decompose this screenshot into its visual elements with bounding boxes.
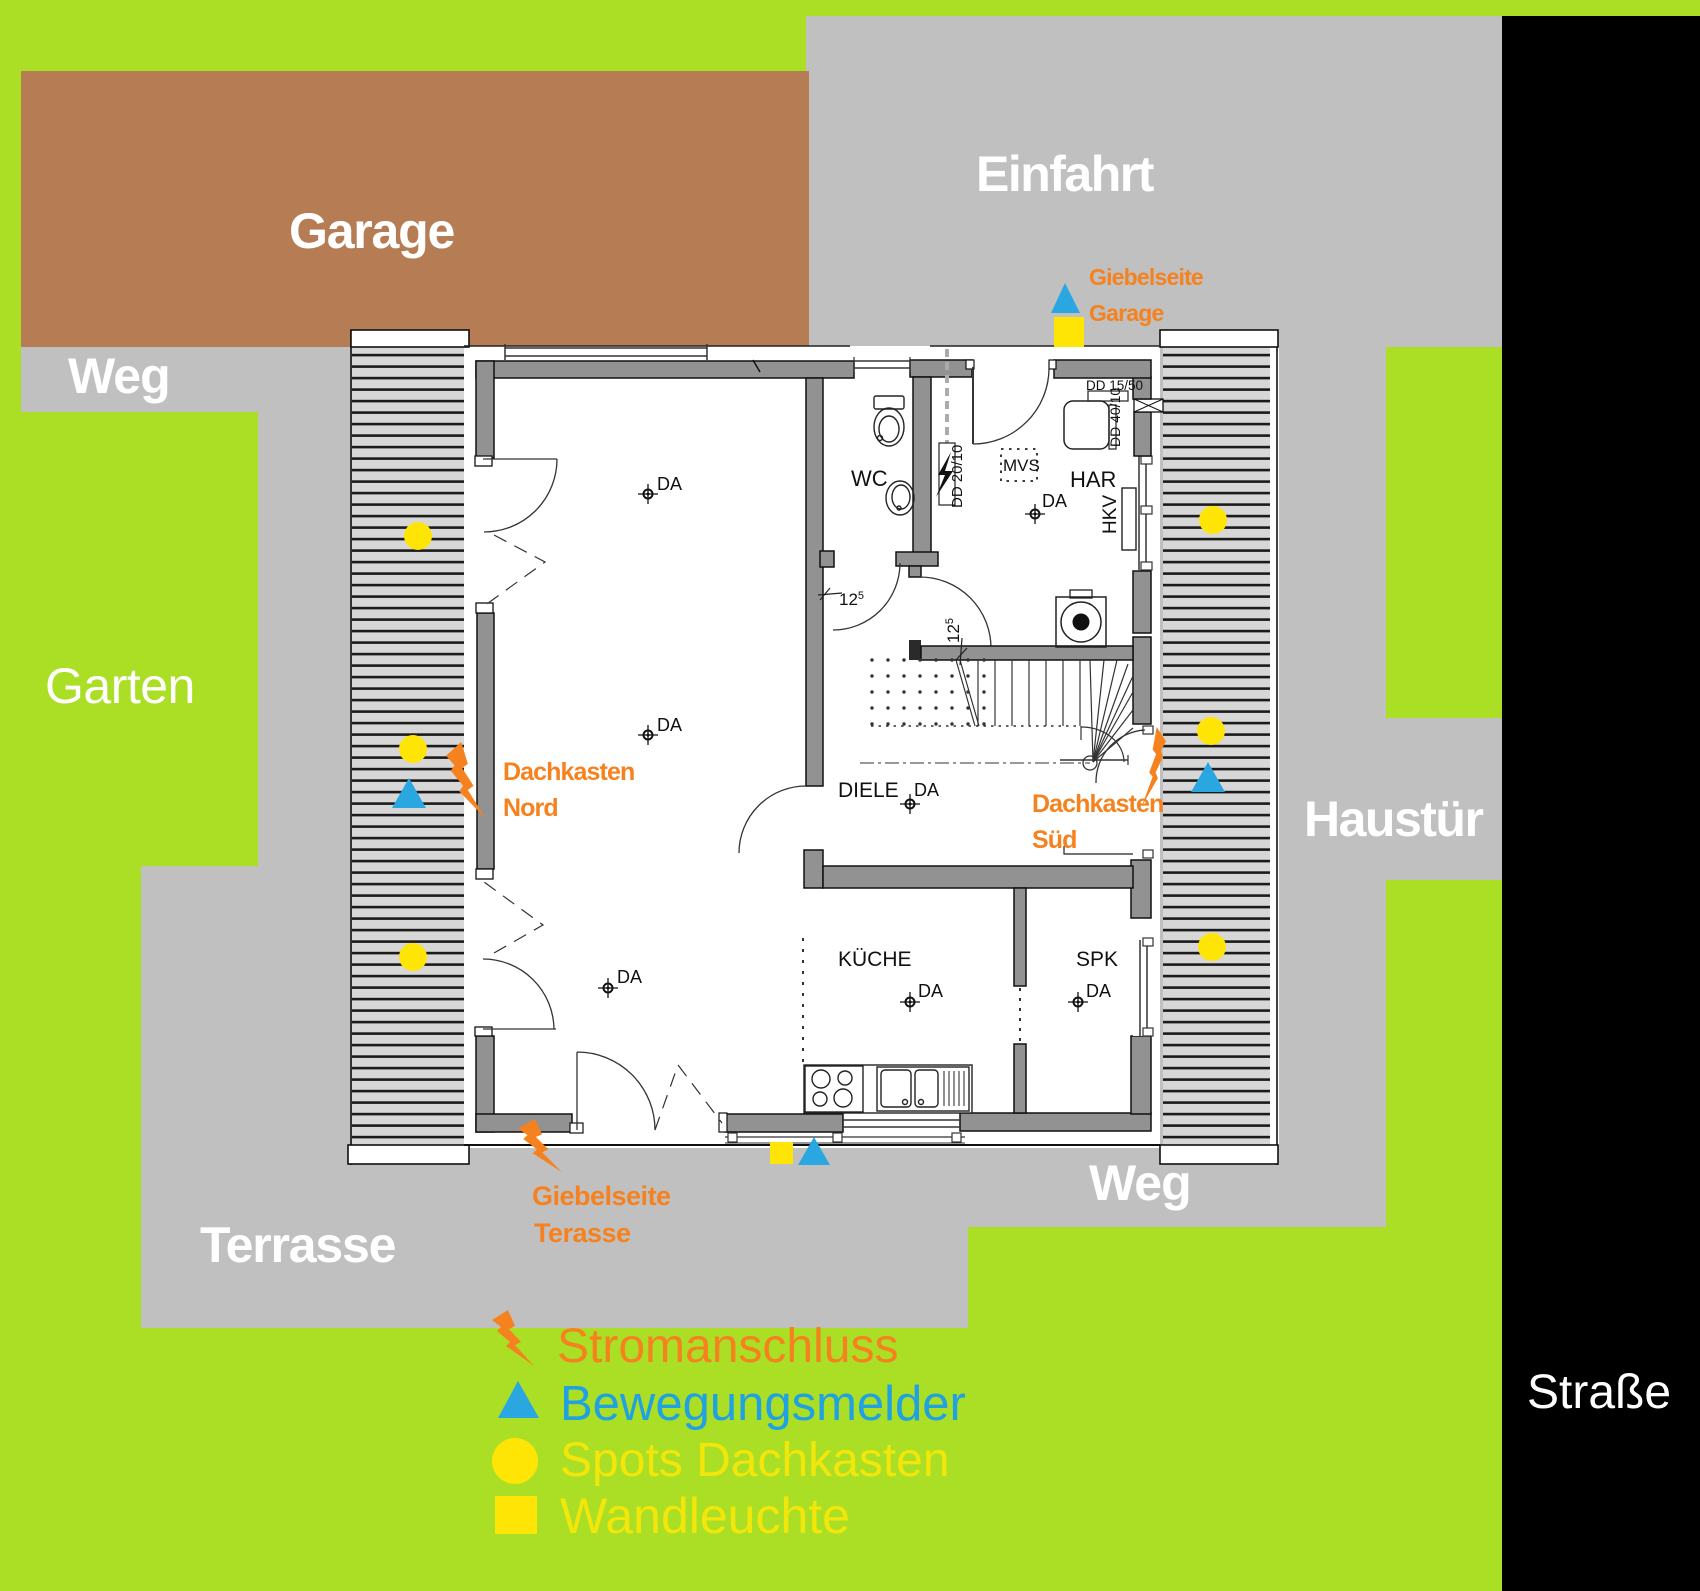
svg-text:MVS: MVS xyxy=(1003,456,1040,475)
svg-text:Süd: Süd xyxy=(1032,826,1077,854)
svg-text:DD 40/10: DD 40/10 xyxy=(1107,388,1123,447)
svg-text:DA: DA xyxy=(1086,981,1111,1001)
svg-text:Straße: Straße xyxy=(1527,1366,1671,1419)
svg-text:Nord: Nord xyxy=(503,794,558,822)
svg-text:Bewegungsmelder: Bewegungsmelder xyxy=(560,1377,966,1431)
svg-text:Haustür: Haustür xyxy=(1304,791,1483,847)
svg-text:DA: DA xyxy=(617,967,642,987)
svg-text:HKV: HKV xyxy=(1100,495,1121,534)
svg-text:Weg: Weg xyxy=(1089,1155,1191,1211)
svg-text:Spots Dachkasten: Spots Dachkasten xyxy=(560,1434,950,1487)
svg-text:DA: DA xyxy=(1042,491,1067,511)
svg-text:KÜCHE: KÜCHE xyxy=(838,948,912,971)
svg-text:WC: WC xyxy=(851,466,888,491)
svg-text:Weg: Weg xyxy=(68,348,170,404)
svg-text:Garage: Garage xyxy=(1089,300,1163,326)
svg-text:Einfahrt: Einfahrt xyxy=(976,146,1155,202)
svg-text:DD 20/10: DD 20/10 xyxy=(949,445,966,508)
svg-text:DD 15/50: DD 15/50 xyxy=(1086,378,1143,393)
svg-text:Giebelseite: Giebelseite xyxy=(1089,264,1203,290)
svg-text:Terrasse: Terrasse xyxy=(200,1217,396,1273)
svg-text:SPK: SPK xyxy=(1076,948,1118,971)
svg-text:DA: DA xyxy=(914,780,939,800)
svg-text:Wandleuchte: Wandleuchte xyxy=(560,1488,850,1544)
svg-text:Dachkasten: Dachkasten xyxy=(503,758,634,786)
svg-text:HAR: HAR xyxy=(1070,467,1116,492)
svg-text:Dachkasten: Dachkasten xyxy=(1032,790,1163,818)
svg-text:DA: DA xyxy=(918,981,943,1001)
svg-text:DA: DA xyxy=(657,715,682,735)
svg-text:DIELE: DIELE xyxy=(838,779,899,802)
svg-text:Terasse: Terasse xyxy=(534,1218,631,1248)
svg-text:DA: DA xyxy=(657,474,682,494)
svg-text:Giebelseite: Giebelseite xyxy=(532,1181,671,1211)
svg-text:Stromanschluss: Stromanschluss xyxy=(557,1320,898,1373)
svg-text:Garage: Garage xyxy=(289,203,455,259)
svg-text:Garten: Garten xyxy=(45,658,195,714)
